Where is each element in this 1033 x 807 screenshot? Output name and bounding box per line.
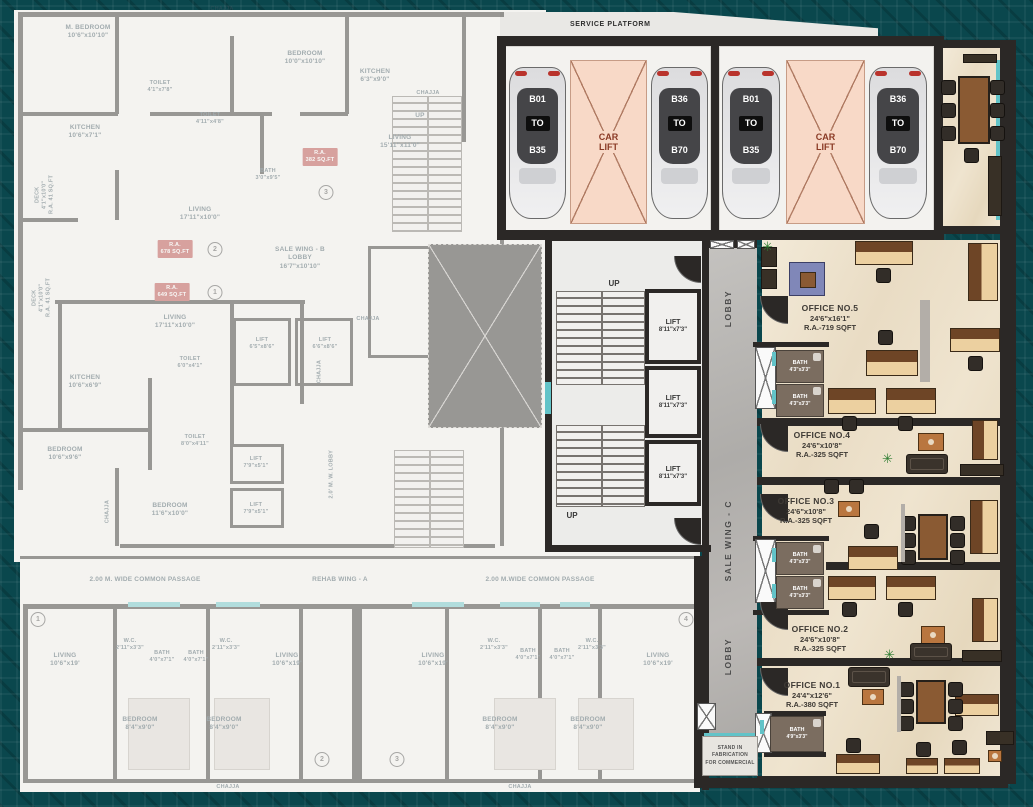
furniture-item — [898, 602, 913, 617]
furniture-item — [849, 479, 864, 494]
plan-wall — [1000, 40, 1009, 784]
office-dims: 24'6"x10'8" — [765, 635, 875, 644]
furniture-item — [990, 126, 1005, 141]
car-range-start: B36 — [652, 95, 707, 104]
car-range-to: TO — [739, 116, 763, 131]
office-label: OFFICE NO.3 24'6"x10'8" R.A.-325 SQFT — [751, 496, 861, 525]
car-taillight-icon — [515, 71, 527, 76]
car-taillight-icon — [875, 71, 887, 76]
furniture-item — [824, 479, 839, 494]
stand-in-line: FOR COMMERCIAL — [705, 760, 754, 768]
furniture-item — [846, 738, 861, 753]
car-range-to: TO — [886, 116, 910, 131]
bath-room: BATH 4'3"x3'3" — [776, 542, 824, 575]
furniture-item — [958, 76, 990, 144]
furniture-item — [972, 598, 998, 642]
lift-label: LIFT — [666, 465, 681, 474]
furniture-item — [948, 716, 963, 731]
furniture-item — [762, 240, 776, 254]
furniture-item — [855, 241, 913, 265]
plan-wall — [556, 291, 645, 385]
furniture-item — [948, 682, 963, 697]
office-name: OFFICE NO.3 — [751, 496, 861, 507]
parked-car-icon: B36 TO B70 — [651, 67, 708, 219]
furniture-item — [836, 754, 880, 774]
car-windshield — [879, 168, 917, 184]
lift-room: LIFT 8'11"x7'3" — [645, 289, 701, 364]
car-taillight-icon — [728, 71, 740, 76]
furniture-item — [941, 126, 956, 141]
bath-label: BATH — [790, 727, 805, 734]
office-name: OFFICE NO.4 — [767, 430, 877, 441]
furniture-item — [920, 300, 930, 382]
car-taillight-icon — [690, 71, 702, 76]
stand-in-line: FABRICATION — [712, 752, 748, 760]
furniture-item — [990, 103, 1005, 118]
bath-label: BATH — [793, 586, 808, 593]
furniture-item — [906, 758, 938, 774]
furniture-item — [864, 524, 879, 539]
plan-wall — [545, 234, 711, 241]
stand-in-fabrication-box: STAND IN FABRICATION FOR COMMERCIAL — [702, 736, 758, 776]
car-taillight-icon — [909, 71, 921, 76]
parked-car-icon: B01 TO B35 — [509, 67, 566, 219]
office-label: OFFICE NO.5 24'6"x16'1" R.A.-719 SQFT — [775, 303, 885, 332]
parked-car-icon: B01 TO B35 — [722, 67, 780, 219]
car-lift-shaft-2: CAR LIFT — [786, 60, 865, 224]
furniture-item — [986, 731, 1014, 745]
plan-wall — [497, 36, 506, 240]
office-name: OFFICE NO.5 — [775, 303, 885, 314]
car-range-start: B01 — [723, 95, 779, 104]
lift-room: LIFT 8'11"x7'3" — [645, 440, 701, 506]
furniture-item — [964, 148, 979, 163]
furniture-item — [910, 643, 952, 661]
plan-wall — [737, 240, 755, 249]
office-label: OFFICE NO.2 24'6"x10'8" R.A.-325 SQFT — [765, 624, 875, 653]
furniture-item — [918, 514, 948, 560]
plan-wall — [711, 45, 719, 232]
bath-label: BATH — [793, 394, 808, 401]
rehab-wing-floor — [20, 548, 700, 792]
plan-wall — [545, 382, 551, 414]
bath-label: BATH — [793, 552, 808, 559]
plan-wall — [556, 425, 645, 507]
furniture-item — [990, 80, 1005, 95]
furniture-item — [941, 103, 956, 118]
furniture-item — [921, 626, 945, 644]
bath-room: BATH 4'3"x3'3" — [776, 350, 824, 383]
bath-dims: 4'3"x3'3" — [789, 559, 810, 566]
plan-wall — [545, 545, 711, 552]
furniture-item — [899, 682, 914, 697]
bath-room: BATH 4'3"x3'3" — [776, 384, 824, 417]
lift-label: LIFT — [666, 394, 681, 403]
office-area: R.A.-325 SQFT — [751, 516, 861, 525]
car-windshield — [732, 168, 770, 184]
office-label: OFFICE NO.1 24'4"x12'6" R.A.-380 SQFT — [757, 680, 867, 709]
furniture-item — [886, 388, 936, 414]
bath-label: BATH — [793, 360, 808, 367]
bath-room: BATH 4'9"x3'3" — [770, 716, 824, 752]
plan-wall — [757, 776, 1008, 788]
furniture-item — [952, 740, 967, 755]
office-area: R.A.-325 SQFT — [767, 450, 877, 459]
bath-dims: 4'9"x3'3" — [786, 734, 807, 741]
office-label: OFFICE NO.4 24'6"x10'8" R.A.-325 SQFT — [767, 430, 877, 459]
office-area: R.A.-325 SQFT — [765, 644, 875, 653]
furniture-item — [916, 680, 946, 724]
bath-room: BATH 4'3"x3'3" — [776, 576, 824, 609]
lift-room: LIFT 8'11"x7'3" — [645, 366, 701, 438]
lift-dims: 8'11"x7'3" — [659, 403, 687, 410]
plan-wall — [497, 36, 944, 46]
furniture-item — [988, 156, 1002, 216]
car-range-end: B35 — [723, 146, 779, 155]
furniture-item — [948, 699, 963, 714]
car-taillight-icon — [657, 71, 669, 76]
office-dims: 24'6"x10'8" — [751, 507, 861, 516]
furniture-item — [899, 716, 914, 731]
furniture-item — [962, 650, 1002, 662]
car-range-end: B35 — [510, 146, 565, 155]
furniture-item — [988, 750, 1002, 762]
furniture-item — [950, 550, 965, 565]
office-name: OFFICE NO.2 — [765, 624, 875, 635]
furniture-item — [963, 54, 997, 63]
furniture-item — [960, 464, 1004, 476]
plan-wall — [757, 477, 1004, 485]
furniture-item — [950, 516, 965, 531]
furniture-item — [968, 243, 998, 301]
plan-wall — [710, 240, 734, 249]
furniture-item — [899, 699, 914, 714]
car-lift-label: CAR LIFT — [814, 131, 838, 154]
office-area: R.A.-380 SQFT — [757, 700, 867, 709]
furniture-item — [941, 80, 956, 95]
office-dims: 24'6"x16'1" — [775, 314, 885, 323]
furniture-item — [760, 720, 764, 734]
car-range-to: TO — [668, 116, 692, 131]
furniture-item — [886, 576, 936, 600]
lobby-floor — [709, 248, 757, 776]
stand-in-line: STAND IN — [718, 745, 743, 753]
bath-dims: 4'3"x3'3" — [789, 367, 810, 374]
office-name: OFFICE NO.1 — [757, 680, 867, 691]
plan-wall — [934, 226, 1008, 234]
stairs-up-label-top: UP — [608, 280, 619, 288]
furniture-item — [882, 452, 896, 466]
floor-plan-canvas: SERVICE PLATFORM M. BEDROOM 10'6"x10'10"… — [0, 0, 1033, 807]
car-range-end: B70 — [652, 146, 707, 155]
car-range-start: B01 — [510, 95, 565, 104]
plan-wall — [697, 703, 716, 730]
furniture-item — [876, 268, 891, 283]
furniture-item — [789, 262, 825, 296]
bath-dims: 4'3"x3'3" — [789, 401, 810, 408]
car-taillight-icon — [548, 71, 560, 76]
car-lift-shaft-1: CAR LIFT — [570, 60, 647, 224]
furniture-item — [970, 500, 998, 554]
furniture-item — [950, 533, 965, 548]
furniture-item — [950, 328, 1000, 352]
furniture-item — [918, 433, 944, 451]
furniture-item — [866, 350, 918, 376]
car-windshield — [519, 168, 556, 184]
office-area: R.A.-719 SQFT — [775, 323, 885, 332]
furniture-item — [906, 454, 948, 474]
lift-dims: 8'11"x7'3" — [659, 474, 687, 481]
furniture-item — [828, 576, 876, 600]
furniture-item — [848, 546, 898, 570]
furniture-item — [898, 416, 913, 431]
car-range-end: B70 — [870, 146, 926, 155]
furniture-item — [916, 742, 931, 757]
lift-label: LIFT — [666, 318, 681, 327]
car-lift-label: CAR LIFT — [597, 131, 621, 154]
stairs-up-label-bottom: UP — [566, 512, 577, 520]
furniture-item — [897, 676, 901, 732]
office-dims: 24'4"x12'6" — [757, 691, 867, 700]
sale-wing-c-label: SALE WING - C — [724, 500, 733, 581]
left-wing-floor — [14, 10, 546, 562]
furniture-item — [761, 269, 777, 289]
car-range-start: B36 — [870, 95, 926, 104]
plan-wall — [764, 752, 826, 757]
furniture-item — [884, 648, 898, 662]
plan-wall — [757, 418, 1004, 426]
car-range-to: TO — [526, 116, 550, 131]
plan-wall — [1009, 40, 1016, 784]
service-platform-label: SERVICE PLATFORM — [570, 21, 651, 28]
furniture-item — [842, 602, 857, 617]
car-windshield — [661, 168, 698, 184]
furniture-item — [842, 416, 857, 431]
furniture-item — [968, 356, 983, 371]
lobby-label-bottom: LOBBY — [724, 638, 733, 675]
lobby-label-top: LOBBY — [724, 290, 733, 327]
furniture-item — [944, 758, 980, 774]
furniture-item — [828, 388, 876, 414]
furniture-item — [972, 420, 998, 460]
car-taillight-icon — [762, 71, 774, 76]
furniture-item — [901, 504, 905, 562]
parked-car-icon: B36 TO B70 — [869, 67, 927, 219]
plan-wall — [694, 556, 702, 778]
bath-dims: 4'3"x3'3" — [789, 593, 810, 600]
office-dims: 24'6"x10'8" — [767, 441, 877, 450]
lift-dims: 8'11"x7'3" — [659, 327, 687, 334]
